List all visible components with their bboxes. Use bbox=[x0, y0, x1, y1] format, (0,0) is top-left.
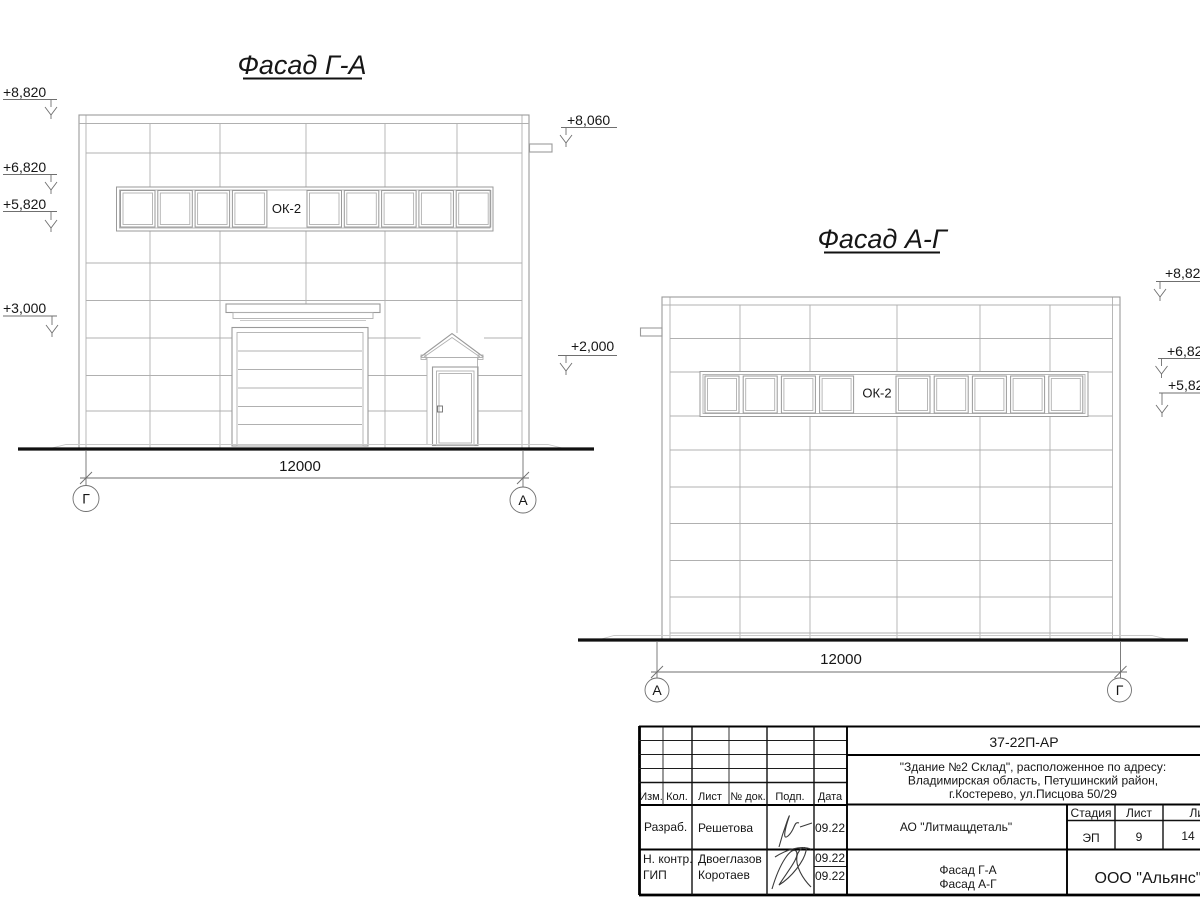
left-window-strip: ОК-2 bbox=[117, 187, 494, 231]
elevation-label-3000: +3,000 bbox=[3, 300, 46, 316]
garage-canopy bbox=[226, 304, 380, 313]
left-elevation-marks: +8,820 +6,820 +5,820 +3,000 +8,060 bbox=[3, 84, 617, 375]
roof-scupper bbox=[641, 328, 663, 336]
left-dimension: 12000 Г А bbox=[73, 450, 536, 513]
entry-door bbox=[421, 334, 484, 446]
signature-reshetova bbox=[779, 816, 812, 847]
elevation-label-682: +6,82 bbox=[1167, 343, 1200, 359]
company-name: ООО "Альянс" bbox=[1095, 870, 1200, 887]
elevation-mark-3000: +3,000 bbox=[3, 300, 58, 337]
elevation-mark-8820: +8,820 bbox=[3, 84, 57, 119]
elevation-label-8820: +8,820 bbox=[3, 84, 46, 100]
left-facade-title: Фасад Г-А bbox=[237, 50, 366, 80]
col-list: Лист bbox=[698, 791, 722, 803]
signature-dvoeglazov-korotaev bbox=[772, 848, 811, 889]
address-line2: Владимирская область, Петушинский район, bbox=[908, 774, 1158, 788]
name-korotaev: Коротаев bbox=[698, 868, 750, 882]
door-handle bbox=[438, 406, 443, 412]
right-elevation-marks: +8,82 +6,82 +5,82 bbox=[1154, 265, 1200, 417]
stage-label: Стадия bbox=[1071, 806, 1112, 820]
elevation-mark-2000: +2,000 bbox=[558, 338, 617, 375]
right-window-label: ОК-2 bbox=[862, 386, 891, 401]
sheet-title-line1: Фасад Г-А bbox=[939, 863, 996, 877]
sheets-value: 14 bbox=[1181, 829, 1195, 843]
sheet-value: 9 bbox=[1136, 830, 1143, 844]
col-podp: Подп. bbox=[775, 791, 804, 803]
left-window-label: ОК-2 bbox=[272, 201, 301, 216]
address-line3: г.Костерево, ул.Писцова 50/29 bbox=[949, 787, 1117, 801]
role-razrab: Разраб. bbox=[644, 820, 687, 834]
left-axis-right-label: А bbox=[518, 492, 528, 508]
col-data: Дата bbox=[818, 791, 843, 803]
date-gip: 09.22 bbox=[815, 869, 845, 883]
stage-value: ЭП bbox=[1082, 831, 1099, 845]
elevation-mark-8060: +8,060 bbox=[560, 112, 617, 147]
right-axis-left-label: А bbox=[652, 682, 662, 698]
sheet-title-line2: Фасад А-Г bbox=[939, 877, 997, 891]
elevation-label-6820: +6,820 bbox=[3, 159, 46, 175]
right-dimension-label: 12000 bbox=[820, 651, 862, 668]
sheets-label: Листов bbox=[1190, 806, 1200, 820]
right-facade-title: Фасад А-Г bbox=[817, 224, 948, 254]
col-izm: Изм. bbox=[639, 791, 663, 803]
left-axis-left-label: Г bbox=[82, 491, 90, 507]
roof-scupper bbox=[530, 144, 553, 152]
date-razrab: 09.22 bbox=[815, 821, 845, 835]
elevation-mark-582: +5,82 bbox=[1156, 377, 1200, 417]
right-ground bbox=[578, 636, 1188, 641]
elevation-mark-5820: +5,820 bbox=[3, 196, 57, 232]
client-name: АО "Литмащдеталь" bbox=[900, 820, 1012, 834]
elevation-label-582: +5,82 bbox=[1168, 377, 1200, 393]
elevation-mark-682: +6,82 bbox=[1156, 343, 1200, 378]
role-nkontr: Н. контр. bbox=[643, 852, 693, 866]
elevation-mark-882: +8,82 bbox=[1154, 265, 1200, 301]
doc-number: 37-22П-АР bbox=[989, 734, 1058, 750]
elevation-mark-6820: +6,820 bbox=[3, 159, 57, 194]
staff-row-developer: Разраб. Решетова 09.22 bbox=[644, 820, 845, 835]
elevation-label-2000: +2,000 bbox=[571, 338, 614, 354]
elevation-label-8060: +8,060 bbox=[567, 112, 610, 128]
name-reshetova: Решетова bbox=[698, 821, 753, 835]
sheet-label: Лист bbox=[1126, 806, 1153, 820]
elevation-label-5820: +5,820 bbox=[3, 196, 46, 212]
date-nkontr: 09.22 bbox=[815, 851, 845, 865]
left-facade: Фасад Г-А bbox=[3, 50, 617, 513]
left-facade-wall bbox=[79, 115, 552, 449]
name-dvoeglazov: Двоеглазов bbox=[698, 852, 762, 866]
right-window-strip: ОК-2 bbox=[700, 372, 1088, 417]
revision-header-row: Изм. Кол. Лист № док. Подп. Дата bbox=[639, 791, 843, 803]
elevation-label-882: +8,82 bbox=[1165, 265, 1200, 281]
left-dimension-label: 12000 bbox=[279, 458, 321, 475]
col-kol: Кол. bbox=[666, 791, 688, 803]
drawing-sheet: Фасад Г-А bbox=[0, 0, 1200, 900]
title-block: Изм. Кол. Лист № док. Подп. Дата Разраб.… bbox=[639, 726, 1200, 895]
left-ground bbox=[18, 445, 594, 450]
staff-row-ncontrol: Н. контр. Двоеглазов 09.22 bbox=[643, 851, 845, 866]
col-doc: № док. bbox=[730, 791, 765, 803]
right-facade: Фасад А-Г bbox=[578, 224, 1200, 702]
role-gip: ГИП bbox=[643, 868, 667, 882]
right-axis-right-label: Г bbox=[1116, 682, 1124, 698]
staff-row-gip: ГИП Коротаев 09.22 bbox=[643, 868, 845, 883]
address-line1: "Здание №2 Склад", расположенное по адре… bbox=[900, 760, 1167, 774]
right-dimension: 12000 А Г bbox=[645, 641, 1132, 702]
right-facade-wall bbox=[641, 297, 1121, 640]
garage-door bbox=[226, 304, 380, 446]
